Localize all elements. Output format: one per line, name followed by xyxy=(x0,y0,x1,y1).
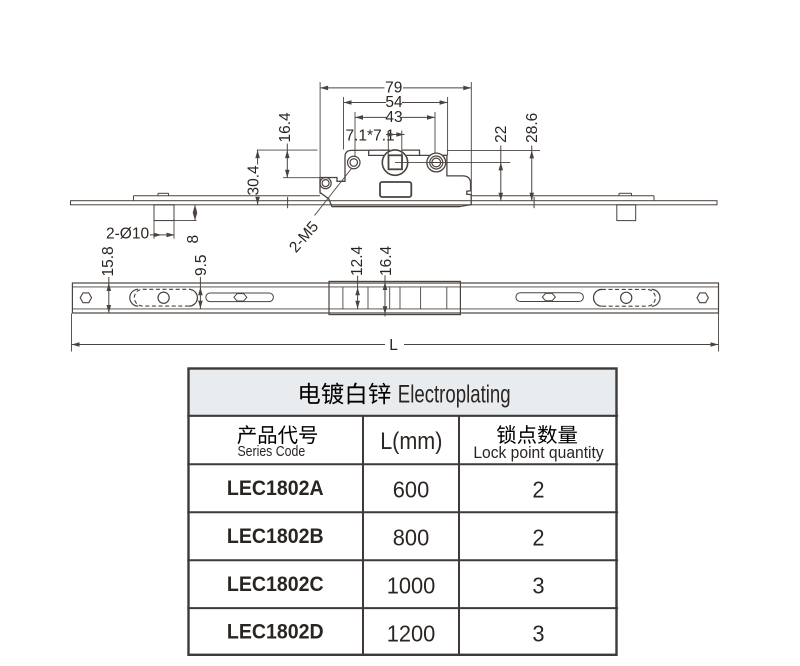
svg-text:16.4: 16.4 xyxy=(277,112,294,143)
svg-text:800: 800 xyxy=(393,524,429,551)
svg-text:3: 3 xyxy=(532,620,544,647)
svg-text:9.5: 9.5 xyxy=(193,254,210,276)
svg-text:LEC1802B: LEC1802B xyxy=(227,524,324,548)
svg-text:LEC1802A: LEC1802A xyxy=(227,476,324,500)
svg-text:600: 600 xyxy=(393,476,429,503)
svg-text:28.6: 28.6 xyxy=(524,113,541,143)
svg-text:22: 22 xyxy=(493,126,510,143)
svg-text:L(mm): L(mm) xyxy=(380,427,442,455)
svg-text:LEC1802C: LEC1802C xyxy=(227,572,324,596)
svg-text:2-Ø10: 2-Ø10 xyxy=(106,226,149,243)
svg-text:15.8: 15.8 xyxy=(100,246,117,276)
svg-text:LEC1802D: LEC1802D xyxy=(227,620,324,644)
svg-text:Electroplating: Electroplating xyxy=(398,380,511,408)
svg-text:1000: 1000 xyxy=(387,572,436,599)
svg-text:Lock point quantity: Lock point quantity xyxy=(473,443,604,462)
svg-text:7.1*7.1: 7.1*7.1 xyxy=(346,128,395,145)
svg-text:2-M5: 2-M5 xyxy=(286,218,322,256)
svg-text:43: 43 xyxy=(385,109,402,126)
svg-text:1200: 1200 xyxy=(387,620,436,647)
svg-text:8: 8 xyxy=(185,235,202,244)
svg-text:12.4: 12.4 xyxy=(349,245,366,276)
svg-text:2: 2 xyxy=(532,524,544,551)
svg-text:3: 3 xyxy=(532,572,544,599)
svg-text:L: L xyxy=(389,337,398,354)
svg-text:16.4: 16.4 xyxy=(378,245,395,276)
svg-text:Series Code: Series Code xyxy=(237,443,305,459)
svg-text:30.4: 30.4 xyxy=(246,165,263,196)
svg-text:2: 2 xyxy=(532,476,544,503)
